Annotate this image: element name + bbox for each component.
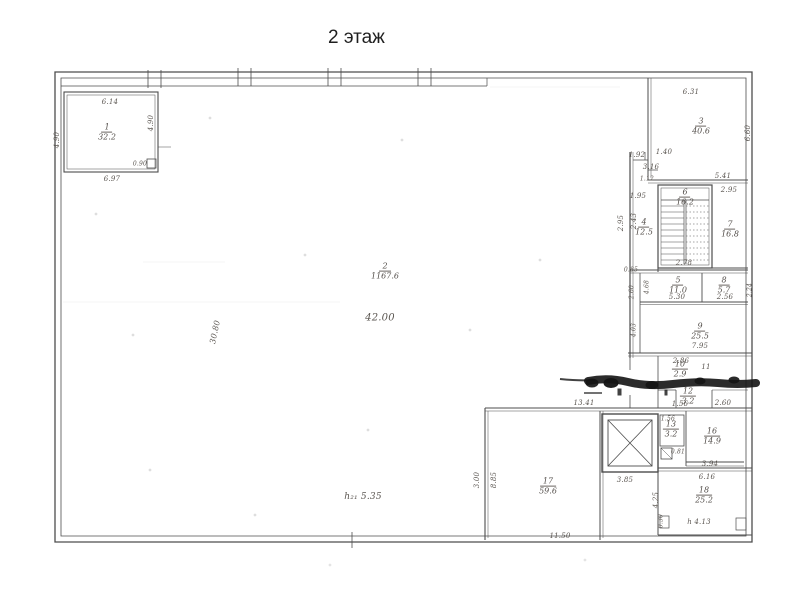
- room-13-walls: [660, 415, 684, 446]
- stair-treads: [661, 206, 709, 260]
- scan-noise: [63, 87, 620, 566]
- room-1-walls: [64, 92, 171, 172]
- duct-box: [661, 448, 672, 459]
- elevator-shaft: [602, 414, 658, 472]
- window-ticks: [148, 68, 431, 548]
- floor-plan-page: 2 этаж: [0, 0, 800, 600]
- bottom-right-walls: [485, 408, 752, 540]
- stairwell: [658, 185, 712, 268]
- floor-plan-drawing: [0, 0, 800, 600]
